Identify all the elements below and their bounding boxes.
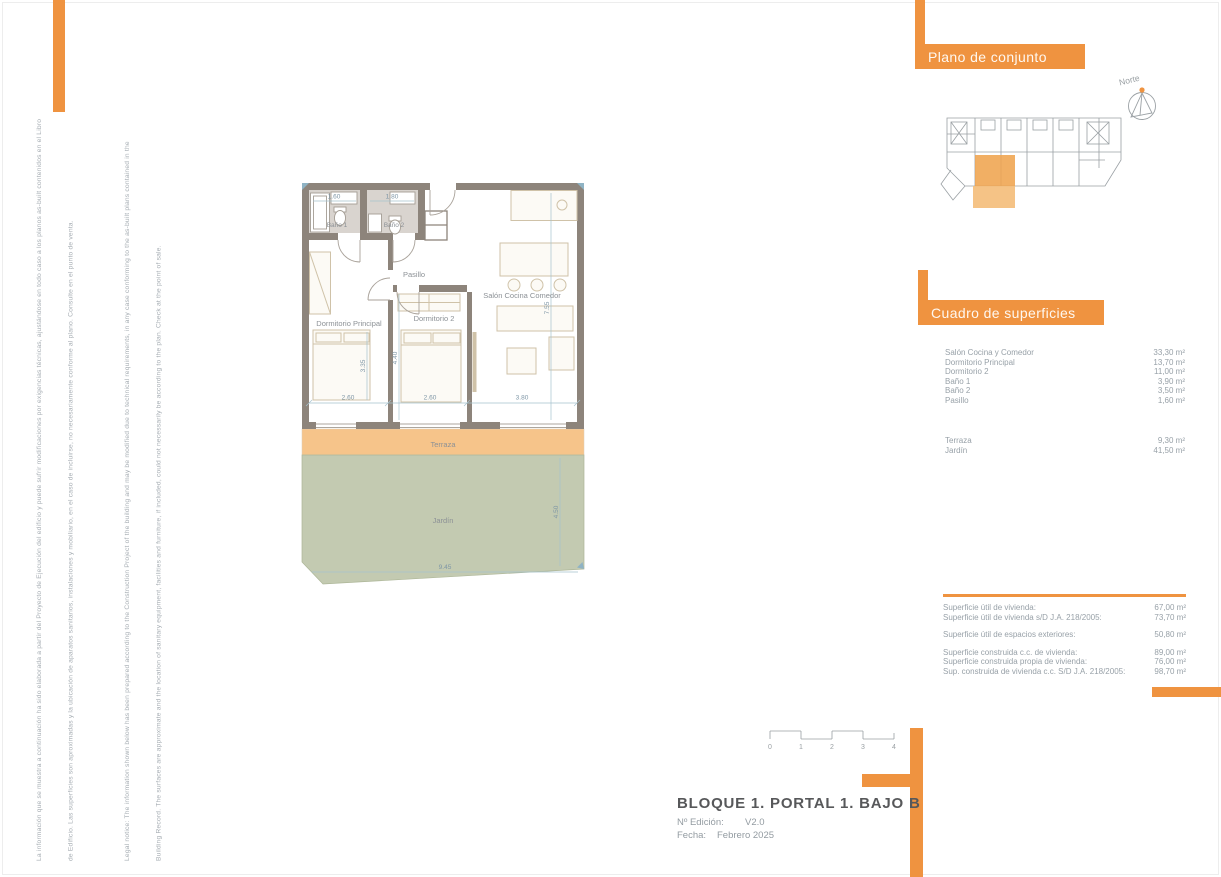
title-block: BLOQUE 1. PORTAL 1. BAJO B Nº Edición: V… — [677, 795, 921, 842]
north-dot — [1139, 87, 1144, 92]
table-row: Sup. construida de vivienda c.c. S/D J.A… — [943, 667, 1186, 677]
totals-rule — [943, 594, 1186, 597]
legal-notice-english: Legal notice: The information shown belo… — [102, 14, 186, 861]
table-row: Superficie útil de vivienda s/D J.A. 218… — [943, 613, 1186, 623]
total-value: 76,00 m² — [1154, 657, 1186, 667]
dim-salon-w: 3.80 — [516, 395, 529, 402]
table-row: Pasillo1,60 m² — [945, 396, 1185, 406]
overview-banner: Plano de conjunto — [915, 44, 1085, 69]
accent-bar-top-left — [53, 0, 65, 112]
total-label: Sup. construida de vivienda c.c. S/D J.A… — [943, 667, 1125, 677]
total-value: 67,00 m² — [1154, 603, 1186, 613]
dim-jardin-h: 4.50 — [553, 505, 560, 518]
legal-es-line1: La información que se muestra a continua… — [35, 14, 46, 861]
dim-banio2: 1.80 — [386, 194, 399, 201]
scale-tick-1: 1 — [799, 744, 803, 751]
date-row: Fecha: Febrero 2025 — [677, 829, 921, 842]
dim-salon-h: 7.55 — [544, 301, 551, 314]
table-row: Baño 23,50 m² — [945, 386, 1185, 396]
label-banio2: Baño 2 — [384, 222, 405, 229]
stool — [531, 279, 543, 291]
scale-bar: 0 1 2 3 4 — [765, 725, 900, 755]
kitchen-island — [500, 243, 568, 276]
overview-title: Plano de conjunto — [928, 49, 1047, 65]
totals-group-exterior: Superficie útil de espacios exteriores:5… — [943, 630, 1186, 640]
edition-row: Nº Edición: V2.0 — [677, 816, 921, 829]
tv-board — [473, 332, 477, 392]
table-row: Dormitorio Principal13,70 m² — [945, 358, 1185, 368]
table-row: Dormitorio 211,00 m² — [945, 367, 1185, 377]
north-compass — [1129, 87, 1156, 119]
north-label: Norte — [1118, 73, 1141, 88]
accent-bar-overview — [915, 0, 925, 44]
room-value: 11,00 m² — [1154, 367, 1185, 377]
table-row: Salón Cocina y Comedor33,30 m² — [945, 348, 1185, 358]
totals-group-built: Superficie construida c.c. de vivienda:8… — [943, 648, 1186, 677]
room-label: Jardín — [945, 446, 967, 456]
label-dorm-principal: Dormitorio Principal — [316, 319, 382, 328]
room-label: Terraza — [945, 436, 972, 446]
exterior-table: Terraza9,30 m² Jardín41,50 m² — [945, 436, 1185, 455]
dim-jardin-w: 9.45 — [439, 564, 452, 571]
label-dorm2: Dormitorio 2 — [414, 314, 455, 323]
scale-bar-lines — [770, 731, 894, 739]
table-row: Superficie construida c.c. de vivienda:8… — [943, 648, 1186, 658]
accent-bar-surfaces — [918, 270, 928, 300]
table-row: Superficie útil de espacios exteriores:5… — [943, 630, 1186, 640]
legal-en-line2: Building Record. The surfaces are approx… — [155, 14, 166, 861]
scale-tick-3: 3 — [861, 744, 865, 751]
site-plan: Norte — [935, 68, 1165, 213]
room-label: Dormitorio 2 — [945, 367, 989, 377]
floor-plan: 1.60 1.80 3.35 4.40 7.55 2.60 2.60 3.80 … — [295, 175, 600, 595]
surfaces-title: Cuadro de superficies — [931, 305, 1076, 321]
total-value: 50,80 m² — [1154, 630, 1186, 640]
accent-bar-totals — [1152, 687, 1221, 697]
total-label: Superficie útil de vivienda s/D J.A. 218… — [943, 613, 1102, 623]
legal-es-line2: de Edificio. Las superficies son aproxim… — [67, 14, 78, 861]
edition-label: Nº Edición: — [677, 816, 745, 829]
accent-bar-bottom-arm — [862, 774, 910, 787]
dim-dorm2-w: 2.60 — [424, 395, 437, 402]
room-value: 9,30 m² — [1158, 436, 1185, 446]
total-label: Superficie útil de espacios exteriores: — [943, 630, 1076, 640]
entry-closets — [425, 211, 447, 240]
sofa — [497, 306, 573, 331]
dim-dorm-principal-w: 2.60 — [342, 395, 355, 402]
label-banio1: Baño 1 — [327, 222, 348, 229]
room-label: Salón Cocina y Comedor — [945, 348, 1034, 358]
table-row: Terraza9,30 m² — [945, 436, 1185, 446]
label-pasillo: Pasillo — [403, 270, 425, 279]
scale-tick-2: 2 — [830, 744, 834, 751]
table-row: Superficie construida propia de vivienda… — [943, 657, 1186, 667]
room-label: Pasillo — [945, 396, 969, 406]
coffee-table — [507, 348, 536, 374]
totals-group-util: Superficie útil de vivienda:67,00 m² Sup… — [943, 603, 1186, 622]
dim-dorm2-h: 4.40 — [392, 351, 399, 364]
building-outline — [941, 118, 1121, 200]
room-value: 3,50 m² — [1158, 386, 1185, 396]
total-label: Superficie construida c.c. de vivienda: — [943, 648, 1077, 658]
total-value: 98,70 m² — [1154, 667, 1186, 677]
total-value: 73,70 m² — [1154, 613, 1186, 623]
label-jardin: Jardín — [433, 516, 454, 525]
room-value: 33,30 m² — [1153, 348, 1185, 358]
total-value: 89,00 m² — [1154, 648, 1186, 658]
highlighted-unit — [973, 155, 1015, 208]
room-value: 41,50 m² — [1153, 446, 1185, 456]
windows — [316, 424, 566, 428]
surfaces-banner: Cuadro de superficies — [918, 300, 1104, 325]
room-value: 1,60 m² — [1158, 396, 1185, 406]
label-salon: Salón Cocina Comedor — [483, 291, 561, 300]
totals-table: Superficie útil de vivienda:67,00 m² Sup… — [943, 594, 1186, 685]
armchair — [549, 337, 574, 370]
total-label: Superficie útil de vivienda: — [943, 603, 1036, 613]
table-row: Jardín41,50 m² — [945, 446, 1185, 456]
scale-tick-4: 4 — [892, 744, 896, 751]
total-label: Superficie construida propia de vivienda… — [943, 657, 1087, 667]
legal-notice-spanish: La información que se muestra a continua… — [14, 14, 98, 861]
room-label: Dormitorio Principal — [945, 358, 1015, 368]
scale-tick-0: 0 — [768, 744, 772, 751]
table-row: Baño 13,90 m² — [945, 377, 1185, 387]
room-label: Baño 1 — [945, 377, 970, 387]
dim-dorm-principal-h: 3.35 — [360, 359, 367, 372]
label-terraza: Terraza — [430, 440, 456, 449]
sheet-title: BLOQUE 1. PORTAL 1. BAJO B — [677, 795, 921, 812]
room-value: 3,90 m² — [1158, 377, 1185, 387]
date-value: Febrero 2025 — [717, 829, 774, 842]
room-value: 13,70 m² — [1153, 358, 1185, 368]
room-label: Baño 2 — [945, 386, 970, 396]
surfaces-table: Salón Cocina y Comedor33,30 m² Dormitori… — [945, 348, 1185, 406]
stool — [554, 279, 566, 291]
plan-sheet: La información que se muestra a continua… — [0, 0, 1221, 877]
edition-value: V2.0 — [745, 816, 765, 829]
table-row: Superficie útil de vivienda:67,00 m² — [943, 603, 1186, 613]
legal-en-line1: Legal notice: The information shown belo… — [123, 14, 134, 861]
legal-notice: La información que se muestra a continua… — [14, 0, 186, 877]
dim-banio1: 1.60 — [328, 194, 341, 201]
scale-bar-numbers: 0 1 2 3 4 — [768, 744, 896, 751]
stool — [508, 279, 520, 291]
date-label: Fecha: — [677, 829, 717, 842]
